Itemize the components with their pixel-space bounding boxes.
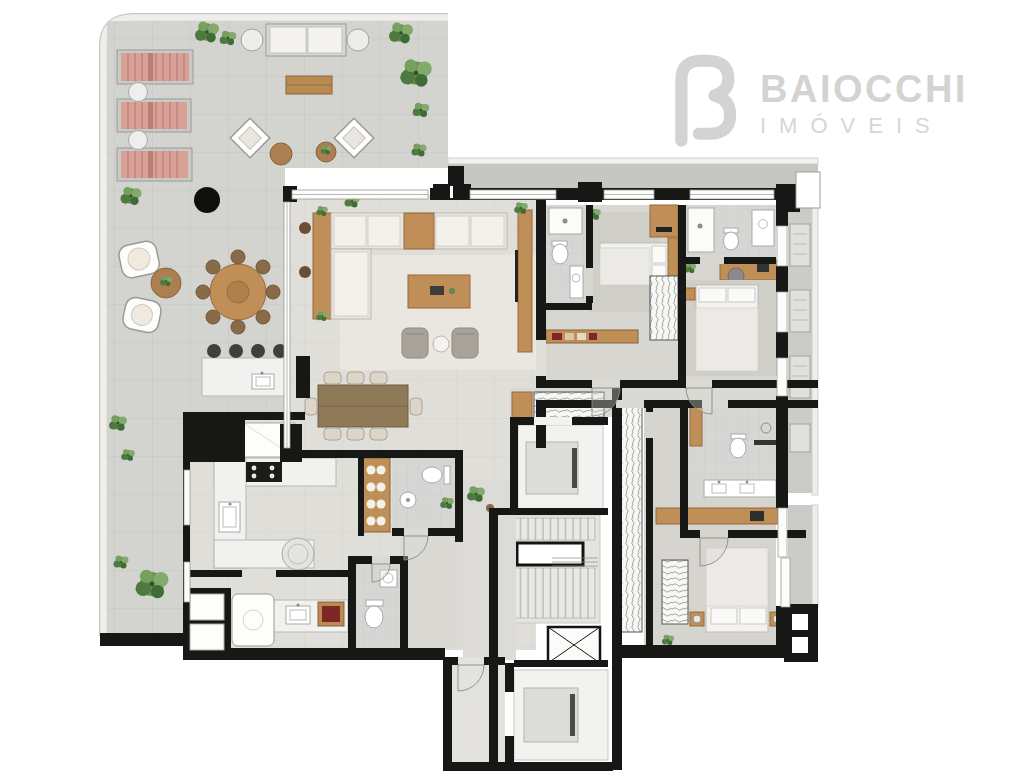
tv-console <box>515 210 532 352</box>
sun-lounger <box>117 50 193 84</box>
suite-1 <box>546 205 678 380</box>
plant <box>321 145 332 154</box>
sliding-glass-door <box>284 202 290 448</box>
side-table <box>433 336 449 352</box>
plant <box>412 144 427 157</box>
window <box>292 190 428 199</box>
laundry-basket <box>318 602 344 626</box>
plant <box>440 497 454 509</box>
tv-panel <box>650 205 678 237</box>
sideboard <box>546 330 638 343</box>
window <box>184 470 190 525</box>
pillar-detail <box>792 637 808 653</box>
master-bathroom <box>688 400 776 500</box>
plant <box>389 23 413 44</box>
toilet <box>365 600 383 628</box>
elevator-shaft <box>548 627 600 663</box>
master-suite <box>616 400 784 645</box>
ac-unit <box>790 290 810 332</box>
sliding-glass-door <box>781 558 790 607</box>
kitchen-sink <box>219 502 240 532</box>
window <box>777 358 787 396</box>
nightstand <box>690 612 704 626</box>
social-elevator <box>514 670 608 760</box>
washer <box>232 594 274 646</box>
plant <box>195 22 219 43</box>
ac-unit <box>790 424 810 452</box>
toilet <box>730 434 746 458</box>
ledge-parapet <box>448 158 818 164</box>
plant <box>114 556 129 569</box>
pouf <box>241 29 263 51</box>
bed <box>696 285 758 371</box>
toilet <box>552 241 568 264</box>
side-stool <box>299 222 311 234</box>
sliding-glass-door <box>778 508 787 557</box>
service-cabinet <box>190 594 224 620</box>
plant <box>316 206 327 216</box>
side-table <box>129 131 148 150</box>
coffee-table <box>408 275 470 308</box>
toilet <box>422 466 450 484</box>
side-table <box>129 83 148 102</box>
plant <box>121 449 135 461</box>
sun-lounger <box>117 148 192 181</box>
plant <box>467 486 485 502</box>
plant <box>662 635 674 645</box>
plant <box>316 311 327 321</box>
elevator-rail <box>572 448 577 488</box>
powder-room <box>392 458 455 528</box>
window <box>470 190 556 199</box>
brand-subtitle: IMÓVEIS <box>760 115 968 137</box>
wine-panel <box>362 458 390 532</box>
plant <box>136 570 169 599</box>
brand-logo: BAIOCCHI IMÓVEIS <box>664 50 968 148</box>
plant <box>400 59 432 86</box>
window <box>777 226 787 266</box>
hall-cabinet <box>512 392 532 418</box>
window <box>604 190 654 199</box>
service-cabinet <box>190 624 224 650</box>
round-table <box>270 143 292 165</box>
window <box>690 190 774 199</box>
wardrobe <box>650 276 678 340</box>
window <box>777 292 787 332</box>
brand-name: BAIOCCHI <box>760 70 968 108</box>
bar-stool <box>229 344 243 358</box>
balcony-parapet <box>812 203 818 495</box>
armchair <box>452 328 478 358</box>
shower-bar <box>754 440 776 445</box>
fire-pit <box>194 187 220 213</box>
side-stool <box>299 266 311 278</box>
suite-2 <box>684 205 778 380</box>
brand-logo-text: BAIOCCHI IMÓVEIS <box>760 70 968 137</box>
suite-2-bathroom <box>686 205 776 257</box>
elevator-rail <box>570 694 575 736</box>
bar-stool <box>251 344 265 358</box>
corner-window <box>796 172 820 208</box>
window <box>184 562 190 602</box>
plant <box>121 187 142 205</box>
private-elevator <box>518 425 603 511</box>
cooktop <box>246 462 282 482</box>
shower <box>688 208 714 252</box>
sofa-back-panel <box>313 213 331 319</box>
page: BAIOCCHI IMÓVEIS <box>0 0 1024 783</box>
armchair <box>402 328 428 358</box>
sun-lounger <box>117 99 191 132</box>
tech-balcony <box>788 203 818 495</box>
plant <box>109 415 127 431</box>
balcony-parapet <box>812 505 818 609</box>
plant <box>413 103 430 117</box>
baiocchi-logo-icon <box>664 50 744 148</box>
outdoor-dining-table <box>196 250 280 334</box>
plant <box>160 276 172 286</box>
pillar-detail <box>792 614 808 630</box>
plant <box>514 202 528 214</box>
outdoor-sofa <box>266 24 346 56</box>
master-desk <box>656 508 778 524</box>
outdoor-coffee-table <box>286 76 332 94</box>
sink-drain <box>406 498 410 502</box>
closet-shelves <box>662 560 688 624</box>
pouf <box>347 29 369 51</box>
concrete-ledge <box>448 164 818 190</box>
ac-unit <box>790 224 810 266</box>
bar-counter <box>202 358 296 396</box>
plant <box>220 31 237 45</box>
double-vanity <box>704 480 776 497</box>
ac-unit <box>790 356 810 398</box>
bar-stool <box>207 344 221 358</box>
suite-1-bathroom <box>546 205 586 303</box>
master-balcony <box>788 505 818 609</box>
kitchen-round-table <box>282 538 314 570</box>
toilet <box>724 228 739 250</box>
